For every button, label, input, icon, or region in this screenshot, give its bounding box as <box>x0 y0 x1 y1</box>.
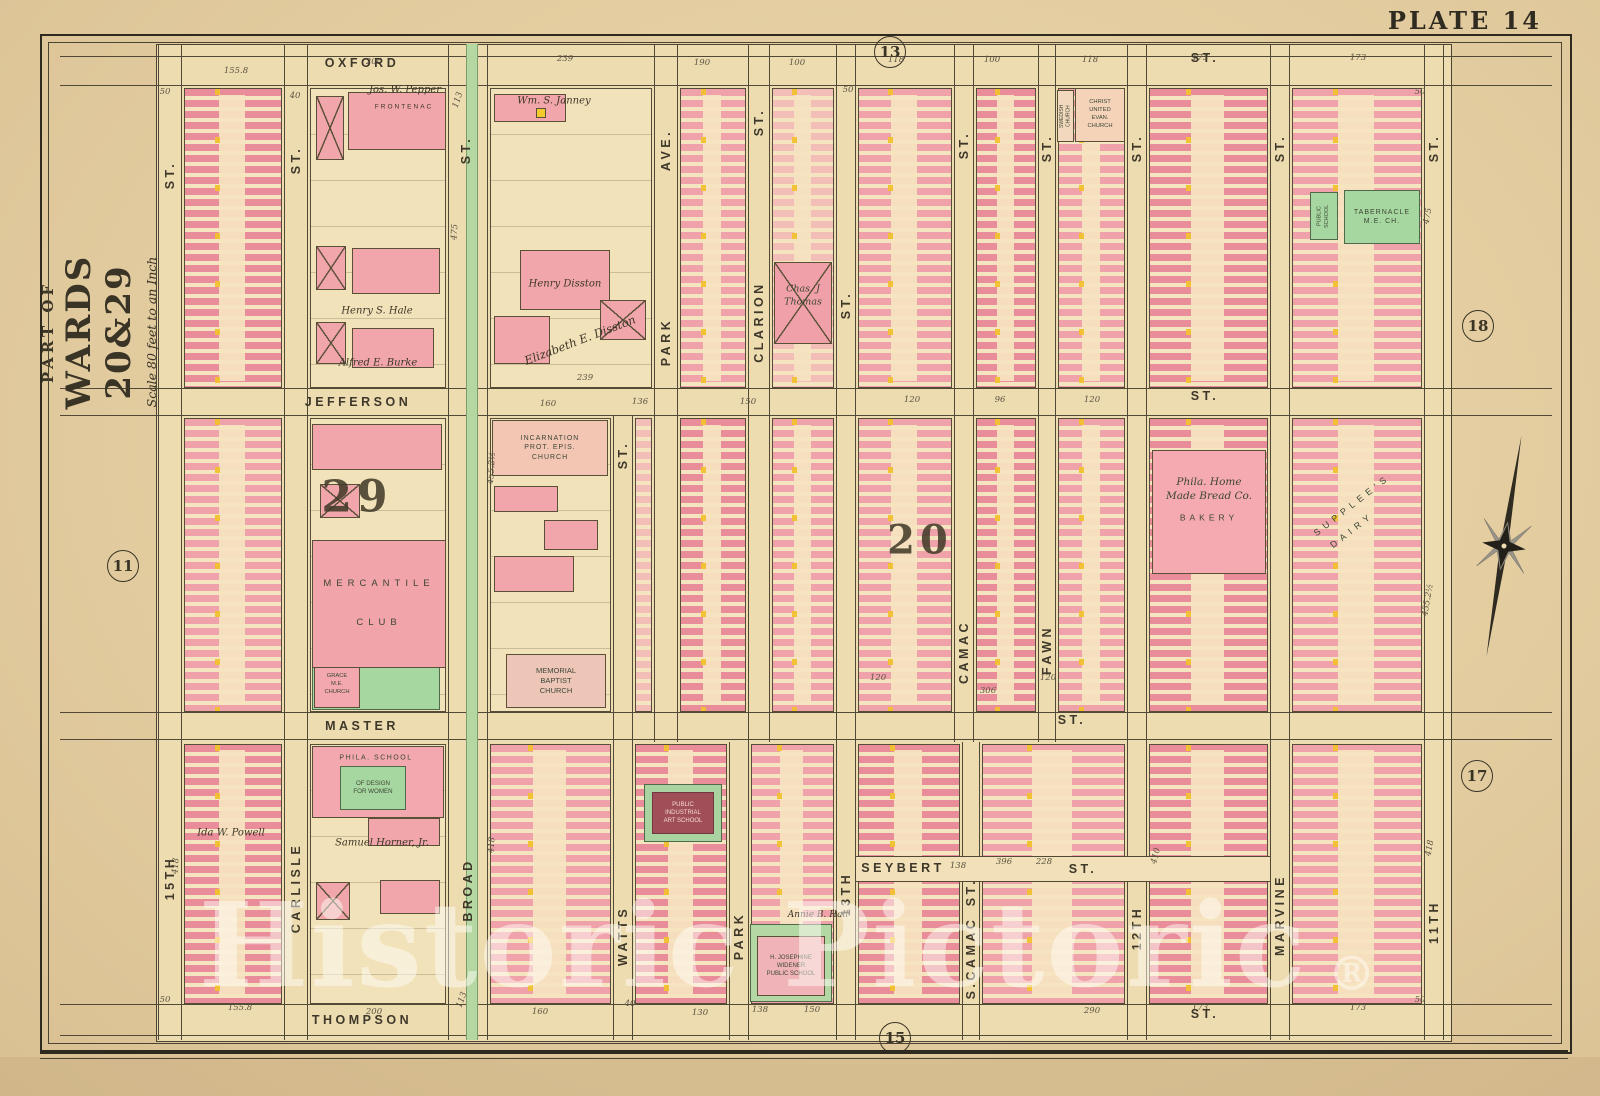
landmark-label-line: PHILA. SCHOOL <box>339 753 412 762</box>
landmark-label-line: CHURCH <box>1066 105 1073 127</box>
landmark-label-line: SWEDISH <box>1059 104 1066 127</box>
landmark-label-line: BAKERY <box>1180 512 1238 523</box>
dimension-label: 306 <box>980 686 996 696</box>
street-name-label: ST. <box>1069 862 1098 876</box>
street-name-label: ST. <box>964 878 978 907</box>
city-block <box>635 744 727 1004</box>
adjacent-plate-ref: 13 <box>874 36 906 68</box>
owner-name-label: Henry S. Hale <box>341 306 412 317</box>
atlas-sheet: PUBLICSCHOOLTABERNACLEM.E. CH.GRACEM.E.C… <box>0 0 1600 1096</box>
block-alley <box>1338 425 1374 705</box>
landmark-label-line: Thomas <box>784 297 822 310</box>
landmark-label-line: CLUB <box>356 617 401 630</box>
landmark-label-line: Phila. Home <box>1176 475 1241 489</box>
city-block <box>635 418 652 712</box>
street-name-label: ST. <box>1040 134 1054 163</box>
dimension-label: 50 <box>160 995 171 1005</box>
dimension-label: 475 <box>449 224 460 241</box>
landmark-label-line: CHURCH <box>532 453 568 462</box>
christ-united-evan-church: CHRISTUNITEDEVAN.CHURCH <box>1075 88 1125 142</box>
block-alley <box>219 95 246 381</box>
adjacent-plate-ref: 18 <box>1462 310 1494 342</box>
dimension-label: 118 <box>1082 55 1098 65</box>
street-name-label: ST. <box>616 441 630 470</box>
street-name-label: ST. <box>1191 1007 1220 1021</box>
dimension-label: 155.8 <box>228 1003 252 1013</box>
street-name-label: ST. <box>1191 389 1220 403</box>
lot-ticks <box>888 419 893 711</box>
phila-school-label: PHILA. SCHOOL <box>339 753 412 762</box>
dimension-label: 120 <box>1084 395 1100 405</box>
bottom-margin <box>0 1057 1600 1096</box>
widener-public-school: H. JOSEPHINEWIDENERPUBLIC SCHOOL <box>757 936 825 996</box>
street-name-label: ST. <box>163 161 177 190</box>
dimension-label: 173 <box>1350 1003 1366 1013</box>
landmark-label-line: ART SCHOOL <box>664 817 703 825</box>
ward-number: 20 <box>887 517 953 564</box>
street-name-label: ST. <box>1427 134 1441 163</box>
landmark-label-line: WIDENER <box>777 962 805 970</box>
owner-name-label: Wm. S. Janney <box>517 96 590 107</box>
street-name-label: ST. <box>289 146 303 175</box>
landmark-label-line: EVAN. <box>1092 115 1109 123</box>
block-alley <box>219 750 246 998</box>
owner-name-label: Alfred E. Burke <box>339 358 418 369</box>
street-name-label: ST. <box>1130 134 1144 163</box>
street-name-label: SEYBERT <box>861 861 945 875</box>
owner-name-label: Ida W. Powell <box>197 828 265 839</box>
dimension-label: 418 <box>486 837 497 854</box>
chas-thomas-1: Chas. J <box>786 284 820 297</box>
dimension-label: 155.8 <box>224 66 248 76</box>
adjacent-plate-ref: 11 <box>107 550 139 582</box>
street-clarion <box>748 44 770 742</box>
incarnation-church: INCARNATIONPROT. EPIS.CHURCH <box>492 420 608 476</box>
lot-ticks <box>792 419 797 711</box>
building-parcel <box>348 92 446 150</box>
lot-ticks <box>215 89 220 387</box>
mercantile-club: MERCANTILECLUB <box>312 540 446 668</box>
street-name-label: THOMPSON <box>312 1013 412 1027</box>
dimension-label: 130 <box>692 1008 708 1018</box>
dimension-label: 228 <box>1036 857 1052 867</box>
city-block <box>976 88 1036 388</box>
owner-name-label: FRONTENAC <box>375 104 433 111</box>
dimension-label: 40 <box>290 91 301 101</box>
margin-title-wards: WARDS 20&29 <box>59 186 139 478</box>
city-block <box>680 418 746 712</box>
public-industrial-art-school: PUBLICINDUSTRIALART SCHOOL <box>652 792 714 834</box>
dimension-label: 239 <box>557 54 573 64</box>
dimension-label: 138 <box>950 861 966 871</box>
block-alley <box>219 425 246 705</box>
city-block <box>1149 88 1268 388</box>
block-alley <box>891 425 917 705</box>
lot-ticks <box>1333 745 1338 1003</box>
street-12th <box>1127 44 1147 1040</box>
city-block <box>490 744 611 1004</box>
landmark-label-line: UNITED <box>1089 107 1111 115</box>
dimension-label: 160 <box>532 1007 548 1017</box>
building-parcel <box>316 246 346 290</box>
street-name-label: ST. <box>752 108 766 137</box>
block-alley <box>1338 750 1374 998</box>
dimension-label: 150 <box>740 397 756 407</box>
lot-ticks <box>995 89 1000 387</box>
block-alley <box>533 750 566 998</box>
lot-ticks <box>528 745 533 1003</box>
landmark-label-line: PUBLIC <box>672 801 694 809</box>
block-alley <box>703 95 721 381</box>
city-block <box>680 88 746 388</box>
street-name-label: WATTS <box>616 906 630 966</box>
city-block <box>976 418 1036 712</box>
dimension-label: 150 <box>804 1005 820 1015</box>
landmark-label-line: CHURCH <box>1087 123 1112 131</box>
frame-bottom-rule <box>40 1050 1568 1054</box>
dimension-label: 50 <box>843 85 854 95</box>
landmark-label-line: MEMORIAL <box>536 666 576 676</box>
ward-number: 29 <box>321 472 392 523</box>
street-name-label: ST. <box>839 291 853 320</box>
street-name-label: OXFORD <box>325 56 399 70</box>
building-parcel <box>316 882 350 920</box>
city-block <box>184 88 282 388</box>
street-name-label: BROAD <box>461 858 475 921</box>
street-name-label: CARLISLE <box>289 843 303 934</box>
street-name-label: 12TH <box>1130 906 1144 951</box>
landmark-label-line: GRACE <box>327 673 348 681</box>
lot-ticks <box>215 419 220 711</box>
street-name-label: ST. <box>459 136 473 165</box>
building-parcel <box>494 486 558 512</box>
owner-name-label: Samuel Horner, Jr. <box>335 838 429 849</box>
lot-ticks <box>1333 419 1338 711</box>
dimension-label: 50 <box>1415 995 1426 1005</box>
dimension-label: 160 <box>540 399 556 409</box>
dimension-label: 100 <box>984 55 1000 65</box>
dimension-label: 173 <box>1350 53 1366 63</box>
design-school-green: OF DESIGNFOR WOMEN <box>340 766 406 810</box>
landmark-label-line: M.E. CH. <box>1364 217 1400 226</box>
street-name-label: ST. <box>1191 51 1220 65</box>
public-school: PUBLICSCHOOL <box>1310 192 1338 240</box>
city-block <box>858 418 952 712</box>
dimension-label: 239 <box>577 373 593 383</box>
landmark-label-line: CHURCH <box>540 686 573 696</box>
plate-title: PLATE 14 <box>1388 6 1542 35</box>
memorial-baptist-church: MEMORIALBAPTISTCHURCH <box>506 654 606 708</box>
margin-title: PART OF WARDS 20&29 Scale 80 feet to an … <box>38 186 160 478</box>
landmark-label-line: FOR WOMEN <box>353 788 392 796</box>
building-parcel <box>544 520 598 550</box>
city-block <box>184 744 282 1004</box>
street-name-label: ST. <box>1058 713 1087 727</box>
street-11th <box>1424 44 1444 1040</box>
dimension-label: 50 <box>160 87 171 97</box>
dimension-label: 138 <box>752 1005 768 1015</box>
landmark-label-line: Chas. J <box>786 284 820 297</box>
landmark-label-line: INCARNATION <box>521 434 580 443</box>
building-parcel <box>312 424 442 470</box>
city-block <box>1292 418 1422 712</box>
landmark-label-line: BAPTIST <box>540 676 571 686</box>
street-name-label: JEFFERSON <box>305 395 412 409</box>
dimension-label: 50 <box>1415 87 1426 97</box>
landmark-label-line: OF DESIGN <box>356 780 390 788</box>
building-parcel <box>494 556 574 592</box>
margin-title-scale: Scale 80 feet to an Inch <box>144 257 159 408</box>
landmark-label-line: CHURCH <box>324 689 349 697</box>
dimension-label: 136 <box>632 397 648 407</box>
owner-name-label: Jos. W. Pepper <box>369 85 441 96</box>
street-name-label: CAMAC <box>957 620 971 684</box>
dimension-label: 290 <box>1084 1006 1100 1016</box>
yellow-parcel <box>536 108 546 118</box>
lot-ticks <box>1079 419 1084 711</box>
lot-ticks <box>701 89 706 387</box>
tabernacle-me-church: TABERNACLEM.E. CH. <box>1344 190 1420 244</box>
owner-name-label: Henry Disston <box>529 279 602 290</box>
lot-ticks <box>888 89 893 387</box>
swedish-church: SWEDISHCHURCH <box>1057 90 1074 142</box>
lot-ticks <box>1186 89 1191 387</box>
lot-ticks <box>215 745 220 1003</box>
building-parcel <box>316 96 344 160</box>
lot-ticks <box>701 419 706 711</box>
dimension-label: 120 <box>870 673 886 683</box>
landmark-label-line: SCHOOL <box>1324 204 1331 227</box>
landmark-label-line: MERCANTILE <box>323 578 434 591</box>
city-block <box>184 418 282 712</box>
city-block <box>772 418 834 712</box>
street-name-label: FAWN <box>1040 625 1054 675</box>
bakery-name-1: Phila. Home <box>1176 475 1241 489</box>
street-name-label: CLARION <box>752 281 766 362</box>
block-alley <box>891 95 917 381</box>
building-parcel <box>380 880 440 914</box>
landmark-label-line: PUBLIC <box>1317 206 1324 226</box>
dimension-label: 120 <box>904 395 920 405</box>
street-name-label: S.CAMAC <box>964 917 978 1000</box>
landmark-label-line: PUBLIC SCHOOL <box>767 970 816 978</box>
landmark-label-line: Made Bread Co. <box>1166 489 1252 503</box>
street-name-label: 15TH <box>163 856 177 901</box>
landmark-label-line: PROT. EPIS. <box>524 443 575 452</box>
margin-title-part-of: PART OF <box>39 281 57 383</box>
landmark-label-line: INDUSTRIAL <box>665 809 701 817</box>
dimension-label: 100 <box>789 58 805 68</box>
grace-me-church: GRACEM.E.CHURCH <box>314 662 360 708</box>
street-name-label: AVE. <box>659 129 673 171</box>
block-alley <box>703 425 721 705</box>
street-name-label: 11TH <box>1427 900 1441 944</box>
dimension-label: 396 <box>996 857 1012 867</box>
landmark-label-line: H. JOSEPHINE <box>770 954 812 962</box>
street-name-label: ST. <box>1273 134 1287 163</box>
street-park-south <box>729 742 749 1040</box>
landmark-label-line: M.E. <box>331 681 343 689</box>
block-alley <box>1191 95 1224 381</box>
street-name-label: 13TH <box>839 872 853 917</box>
adjacent-plate-ref: 17 <box>1461 760 1493 792</box>
frame-bottom-thin-rule <box>40 1058 1568 1059</box>
bakery-label: BAKERY <box>1180 512 1238 523</box>
landmark-label-line: TABERNACLE <box>1354 208 1410 217</box>
city-block <box>1292 744 1422 1004</box>
dimension-label: 40 <box>625 999 636 1009</box>
street-name-label: MARVINE <box>1273 874 1287 956</box>
bakery-name-2: Made Bread Co. <box>1166 489 1252 503</box>
street-name-label: PARK <box>732 912 746 961</box>
dimension-label: 96 <box>995 395 1006 405</box>
street-name-label: MASTER <box>325 719 399 733</box>
chas-thomas-2: Thomas <box>784 297 822 310</box>
city-block <box>1058 418 1125 712</box>
dimension-label: 190 <box>694 58 710 68</box>
street-name-label: ST. <box>957 131 971 160</box>
lot-ticks <box>995 419 1000 711</box>
compass-rose-icon <box>1452 432 1556 660</box>
block-alley <box>1082 425 1100 705</box>
landmark-label-line: CHRIST <box>1089 99 1111 107</box>
city-block <box>858 88 952 388</box>
street-name-label: PARK <box>659 318 673 367</box>
building-parcel <box>352 248 440 294</box>
